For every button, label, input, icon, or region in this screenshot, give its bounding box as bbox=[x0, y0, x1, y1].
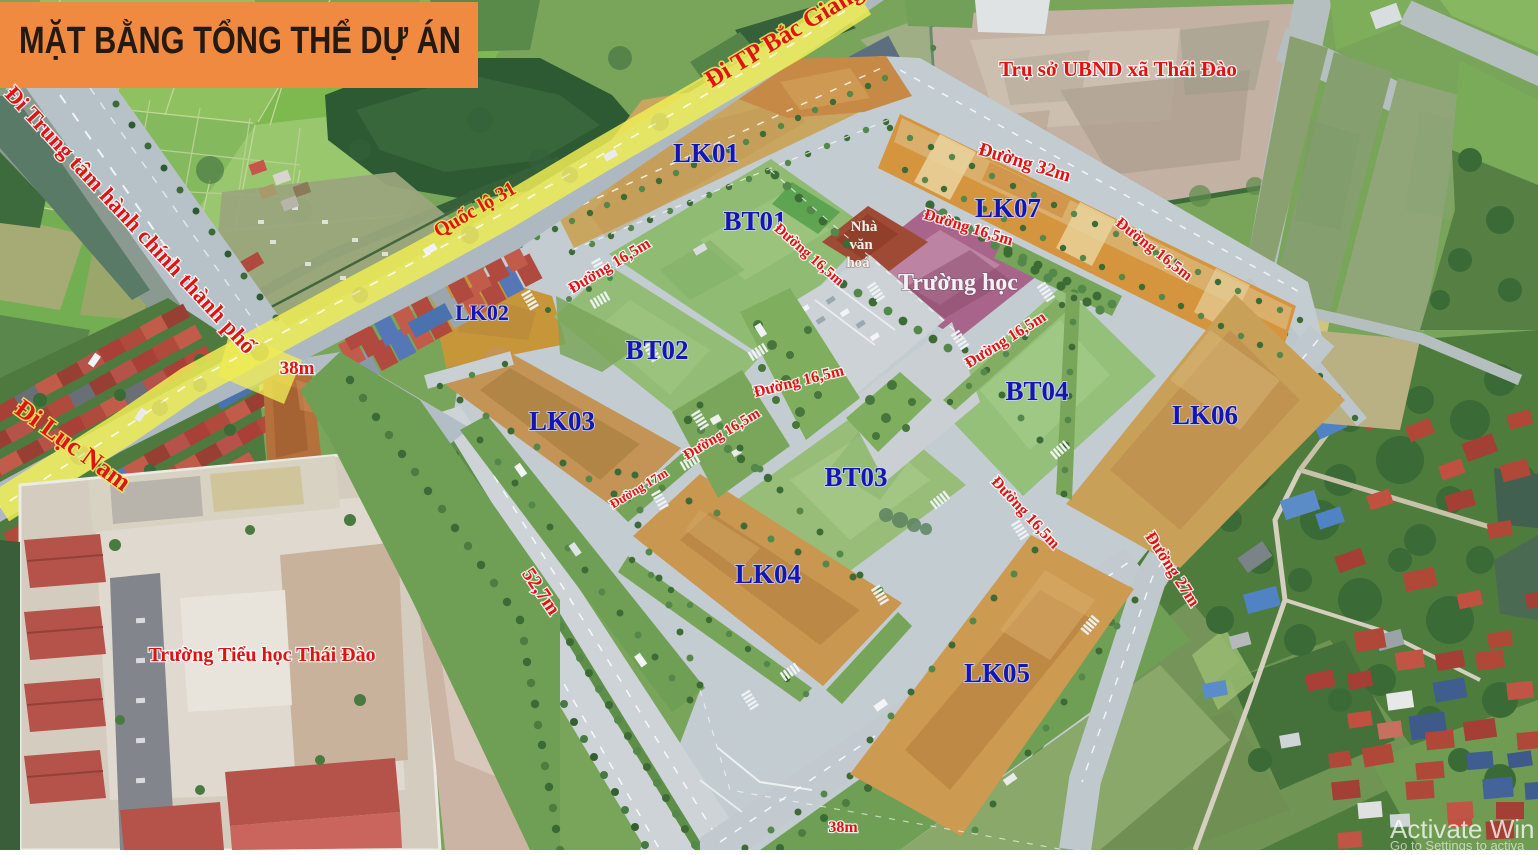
svg-text:LK07: LK07 bbox=[975, 193, 1041, 223]
svg-text:văn: văn bbox=[849, 237, 873, 253]
svg-text:LK04: LK04 bbox=[735, 559, 801, 589]
svg-text:LK01: LK01 bbox=[673, 138, 739, 168]
svg-text:MẶT BẰNG TỔNG THỂ DỰ ÁN: MẶT BẰNG TỔNG THỂ DỰ ÁN bbox=[19, 17, 461, 62]
svg-text:Nhà: Nhà bbox=[851, 219, 878, 235]
svg-text:BT02: BT02 bbox=[625, 335, 688, 365]
svg-text:Go to Settings to activa: Go to Settings to activa bbox=[1390, 838, 1525, 850]
svg-text:BT04: BT04 bbox=[1005, 376, 1068, 406]
svg-text:LK05: LK05 bbox=[964, 658, 1030, 688]
svg-text:Trường Tiểu học Thái Đào: Trường Tiểu học Thái Đào bbox=[148, 644, 375, 666]
svg-text:Trụ sở UBND xã Thái Đào: Trụ sở UBND xã Thái Đào bbox=[999, 57, 1237, 81]
svg-text:LK02: LK02 bbox=[455, 300, 509, 325]
svg-text:BT03: BT03 bbox=[824, 462, 887, 492]
svg-text:38m: 38m bbox=[280, 358, 315, 379]
svg-text:LK03: LK03 bbox=[529, 406, 595, 436]
svg-text:38m: 38m bbox=[828, 819, 858, 836]
svg-text:Trường học: Trường học bbox=[898, 270, 1018, 296]
svg-text:LK06: LK06 bbox=[1172, 400, 1238, 430]
svg-text:hoá: hoá bbox=[846, 255, 870, 271]
